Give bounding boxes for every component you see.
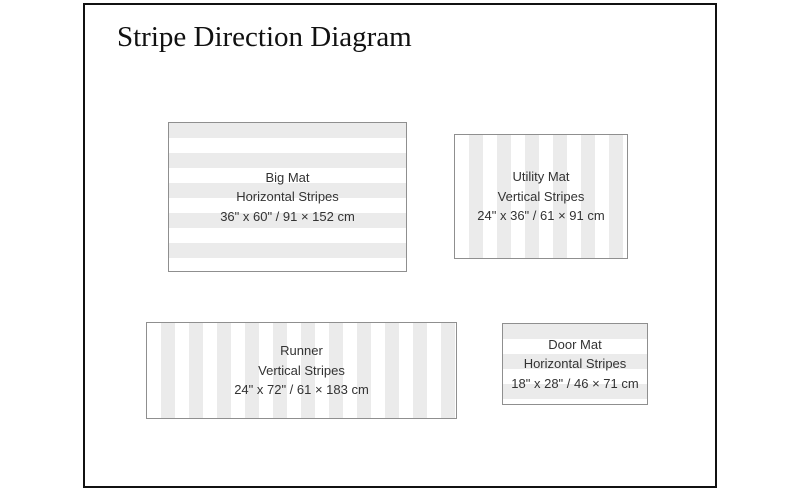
mat-label: Runner Vertical Stripes 24" x 72" / 61 ×… (234, 341, 369, 400)
mat-name: Big Mat (220, 168, 355, 188)
mat-stripe-direction: Horizontal Stripes (511, 354, 638, 374)
mat-dimensions: 24" x 36" / 61 × 91 cm (477, 206, 604, 226)
mat-big-mat: Big Mat Horizontal Stripes 36" x 60" / 9… (168, 122, 407, 272)
mat-stripe-direction: Vertical Stripes (477, 187, 604, 207)
diagram-title: Stripe Direction Diagram (117, 21, 412, 53)
mat-runner: Runner Vertical Stripes 24" x 72" / 61 ×… (146, 322, 457, 419)
mat-name: Runner (234, 341, 369, 361)
mat-name: Utility Mat (477, 167, 604, 187)
mat-utility-mat: Utility Mat Vertical Stripes 24" x 36" /… (454, 134, 628, 259)
mat-label: Door Mat Horizontal Stripes 18" x 28" / … (511, 335, 638, 394)
diagram-frame: Stripe Direction Diagram Big Mat Horizon… (83, 3, 717, 488)
mat-door-mat: Door Mat Horizontal Stripes 18" x 28" / … (502, 323, 648, 405)
mat-stripe-direction: Vertical Stripes (234, 361, 369, 381)
mat-label: Big Mat Horizontal Stripes 36" x 60" / 9… (220, 168, 355, 227)
mat-dimensions: 18" x 28" / 46 × 71 cm (511, 374, 638, 394)
mat-name: Door Mat (511, 335, 638, 355)
mat-label: Utility Mat Vertical Stripes 24" x 36" /… (477, 167, 604, 226)
mat-dimensions: 24" x 72" / 61 × 183 cm (234, 380, 369, 400)
mat-stripe-direction: Horizontal Stripes (220, 187, 355, 207)
diagram-canvas: Stripe Direction Diagram Big Mat Horizon… (0, 0, 800, 495)
mat-dimensions: 36" x 60" / 91 × 152 cm (220, 207, 355, 227)
